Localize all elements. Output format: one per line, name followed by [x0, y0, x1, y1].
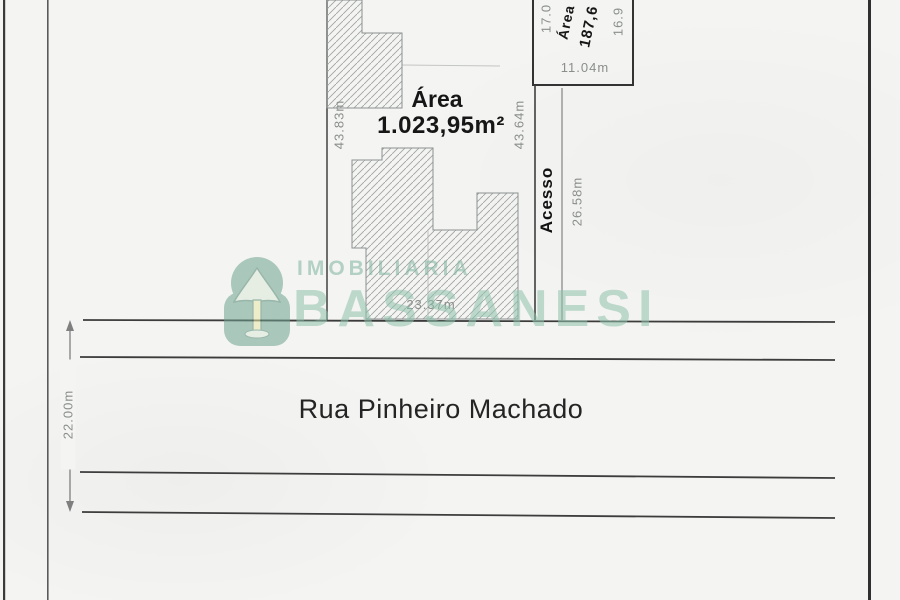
frame-line-left — [47, 0, 49, 600]
street-line-1 — [83, 320, 835, 322]
leader-line — [402, 65, 500, 66]
street-width-dimension: 22.00m — [61, 360, 76, 470]
dimension-arrow-up — [66, 320, 74, 331]
main-lot-left-dimension: 43.83m — [332, 70, 347, 180]
page-border-left — [3, 0, 5, 600]
main-lot-area-title: Área — [377, 86, 497, 113]
main-lot-area-value: 1.023,95m² — [362, 112, 520, 140]
main-lot-front-dimension: 23.37m — [391, 297, 471, 312]
street-line-4 — [82, 512, 835, 518]
access-label: Acesso — [537, 145, 557, 255]
upper-lot-bottom-dimension: 11.04m — [545, 60, 625, 75]
scanned-survey-plan-page: Área 1.023,95m² 43.83m 43.64m 23.37m Ace… — [0, 0, 900, 600]
street-line-2 — [80, 357, 835, 360]
main-lot-right-dimension: 43.64m — [512, 70, 527, 180]
access-length-dimension: 26.58m — [570, 147, 585, 257]
street-line-3 — [80, 472, 835, 478]
page-border-right — [868, 0, 871, 600]
dimension-arrow-down — [66, 501, 74, 512]
street-name: Rua Pinheiro Machado — [286, 394, 596, 425]
building-footprint-main — [352, 148, 518, 319]
